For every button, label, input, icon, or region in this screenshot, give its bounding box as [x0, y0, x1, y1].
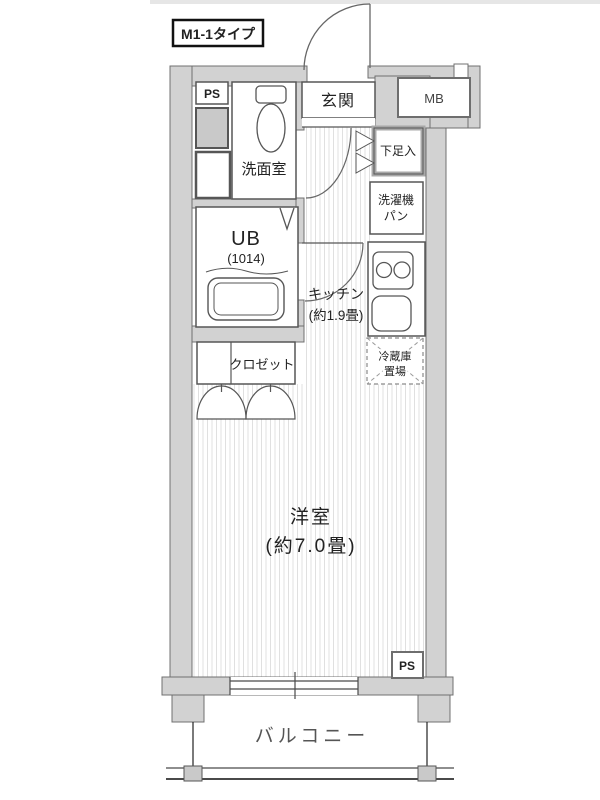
genkan-step	[302, 118, 375, 127]
floor-plan-drawing: M1-1タイプ PS 玄関 MB 洗面室 下足入 洗濯機 パン UB (1014…	[0, 0, 600, 800]
toilet	[256, 86, 286, 152]
main-room-floor	[192, 384, 426, 677]
label-fridge-2: 置場	[384, 365, 406, 378]
label-western-room: 洋室	[290, 506, 332, 528]
label-western-room-size: (約7.0畳)	[265, 535, 356, 557]
entrance-door	[304, 4, 370, 70]
balcony-post-right	[418, 766, 436, 781]
washer-pan-box	[370, 182, 423, 234]
entrance-door-swing-arc	[304, 4, 370, 70]
label-genkan: 玄関	[321, 92, 355, 110]
label-closet: クロゼット	[229, 357, 294, 372]
toilet-bowl	[257, 104, 285, 152]
wall-above-closet	[192, 326, 304, 342]
label-washer-pan-1: 洗濯機	[378, 192, 414, 207]
pillar-right	[418, 695, 450, 722]
wall-left	[170, 66, 192, 695]
kitchen-sink	[372, 296, 411, 331]
window-opening	[230, 677, 358, 695]
photo-edge-artifact	[150, 0, 600, 4]
type-label: M1-1タイプ	[173, 20, 263, 46]
label-shoe-cabinet: 下足入	[380, 144, 416, 158]
label-balcony: バルコニー	[255, 726, 370, 747]
unit-bath	[196, 207, 298, 327]
burner-right	[394, 262, 410, 278]
label-ps-top: PS	[204, 87, 220, 101]
label-ps-bottom: PS	[399, 659, 415, 673]
burner-left	[377, 263, 392, 278]
label-washroom: 洗面室	[241, 161, 286, 178]
floor-plan: M1-1タイプ PS 玄関 MB 洗面室 下足入 洗濯機 パン UB (1014…	[0, 0, 600, 800]
bathtub-inner	[214, 283, 278, 315]
type-label-text: M1-1タイプ	[181, 26, 256, 42]
balcony-post-left	[184, 766, 202, 781]
label-ub-size: (1014)	[227, 251, 265, 266]
label-kitchen: キッチン	[308, 286, 364, 302]
toilet-tank	[256, 86, 286, 103]
pillar-left	[172, 695, 204, 722]
wall-right	[426, 128, 446, 677]
vanity-box	[196, 152, 230, 198]
shaded-shaft-box	[196, 108, 228, 148]
label-mb: MB	[424, 91, 444, 106]
label-kitchen-size: (約1.9畳)	[309, 308, 364, 323]
label-ub: UB	[231, 228, 261, 250]
label-fridge-1: 冷蔵庫	[379, 349, 412, 363]
label-washer-pan-2: パン	[384, 209, 409, 223]
wall-notch	[454, 64, 468, 78]
